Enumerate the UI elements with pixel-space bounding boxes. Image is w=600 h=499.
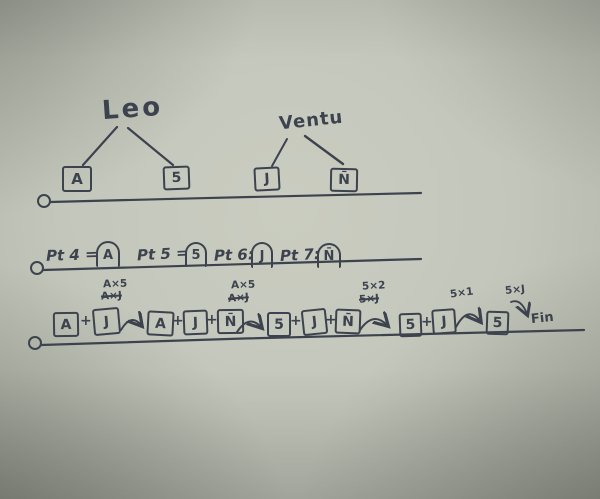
seq-box: J xyxy=(431,308,457,335)
seq-box: 5 xyxy=(267,312,291,337)
point-node-5: 5 xyxy=(185,242,207,267)
line-loop-3 xyxy=(29,337,41,349)
annotation-kept-2: A×5 xyxy=(231,279,256,292)
tree-edge-leo-right xyxy=(128,128,173,165)
node-box-5: 5 xyxy=(163,166,191,191)
annotation-crossed-2: A×J xyxy=(228,291,250,304)
paper-sheet: Leo Ventu A 5 J N̄ Pt 4 = A Pt 5 = 5 Pt … xyxy=(0,0,600,499)
curved-arrow-4 xyxy=(456,314,480,327)
annotation-kept-5: 5×J xyxy=(504,283,525,297)
node-box-j: J xyxy=(253,166,280,191)
annotation-kept-1: A×5 xyxy=(103,278,128,291)
seq-box: J xyxy=(183,310,209,336)
tree-edge-ventu-right xyxy=(305,136,343,164)
annotation-crossed-3: 5×J xyxy=(359,292,380,305)
point-node-7: N̄ xyxy=(317,243,341,268)
seq-box: N̄ xyxy=(217,309,244,334)
annotation-kept-3: 5×2 xyxy=(362,279,386,292)
node-box-n: N̄ xyxy=(330,168,358,192)
node-box-a: A xyxy=(62,166,92,192)
curved-arrow-3 xyxy=(360,319,387,330)
seq-box: J xyxy=(92,307,121,336)
tree-edge-leo-left xyxy=(83,127,117,165)
point-label-6: Pt 6: xyxy=(214,245,254,264)
point-label-7: Pt 7: xyxy=(280,245,321,265)
point-node-6: J xyxy=(251,242,273,268)
seq-box: 5 xyxy=(399,313,423,338)
curved-arrow-5 xyxy=(511,301,527,314)
seq-box: A xyxy=(53,312,79,337)
plus-sign: + xyxy=(290,314,302,328)
tree-label-leo: Leo xyxy=(101,92,164,126)
annotation-crossed-1: A×J xyxy=(101,289,122,302)
seq-box: N̄ xyxy=(335,309,362,335)
curved-arrow-1 xyxy=(121,320,141,330)
point-label-4: Pt 4 = xyxy=(46,245,98,265)
tree-edge-ventu-left xyxy=(272,139,287,166)
point-node-4: A xyxy=(96,241,120,267)
fin-label: Fin xyxy=(530,310,554,327)
plus-sign: + xyxy=(80,314,92,328)
line-loop-2 xyxy=(31,262,43,274)
seq-box: A xyxy=(146,310,174,336)
line-loop-1 xyxy=(38,195,50,207)
baseline-1 xyxy=(50,193,421,202)
point-label-5: Pt 5 = xyxy=(137,244,189,265)
seq-box: 5 xyxy=(486,311,510,336)
